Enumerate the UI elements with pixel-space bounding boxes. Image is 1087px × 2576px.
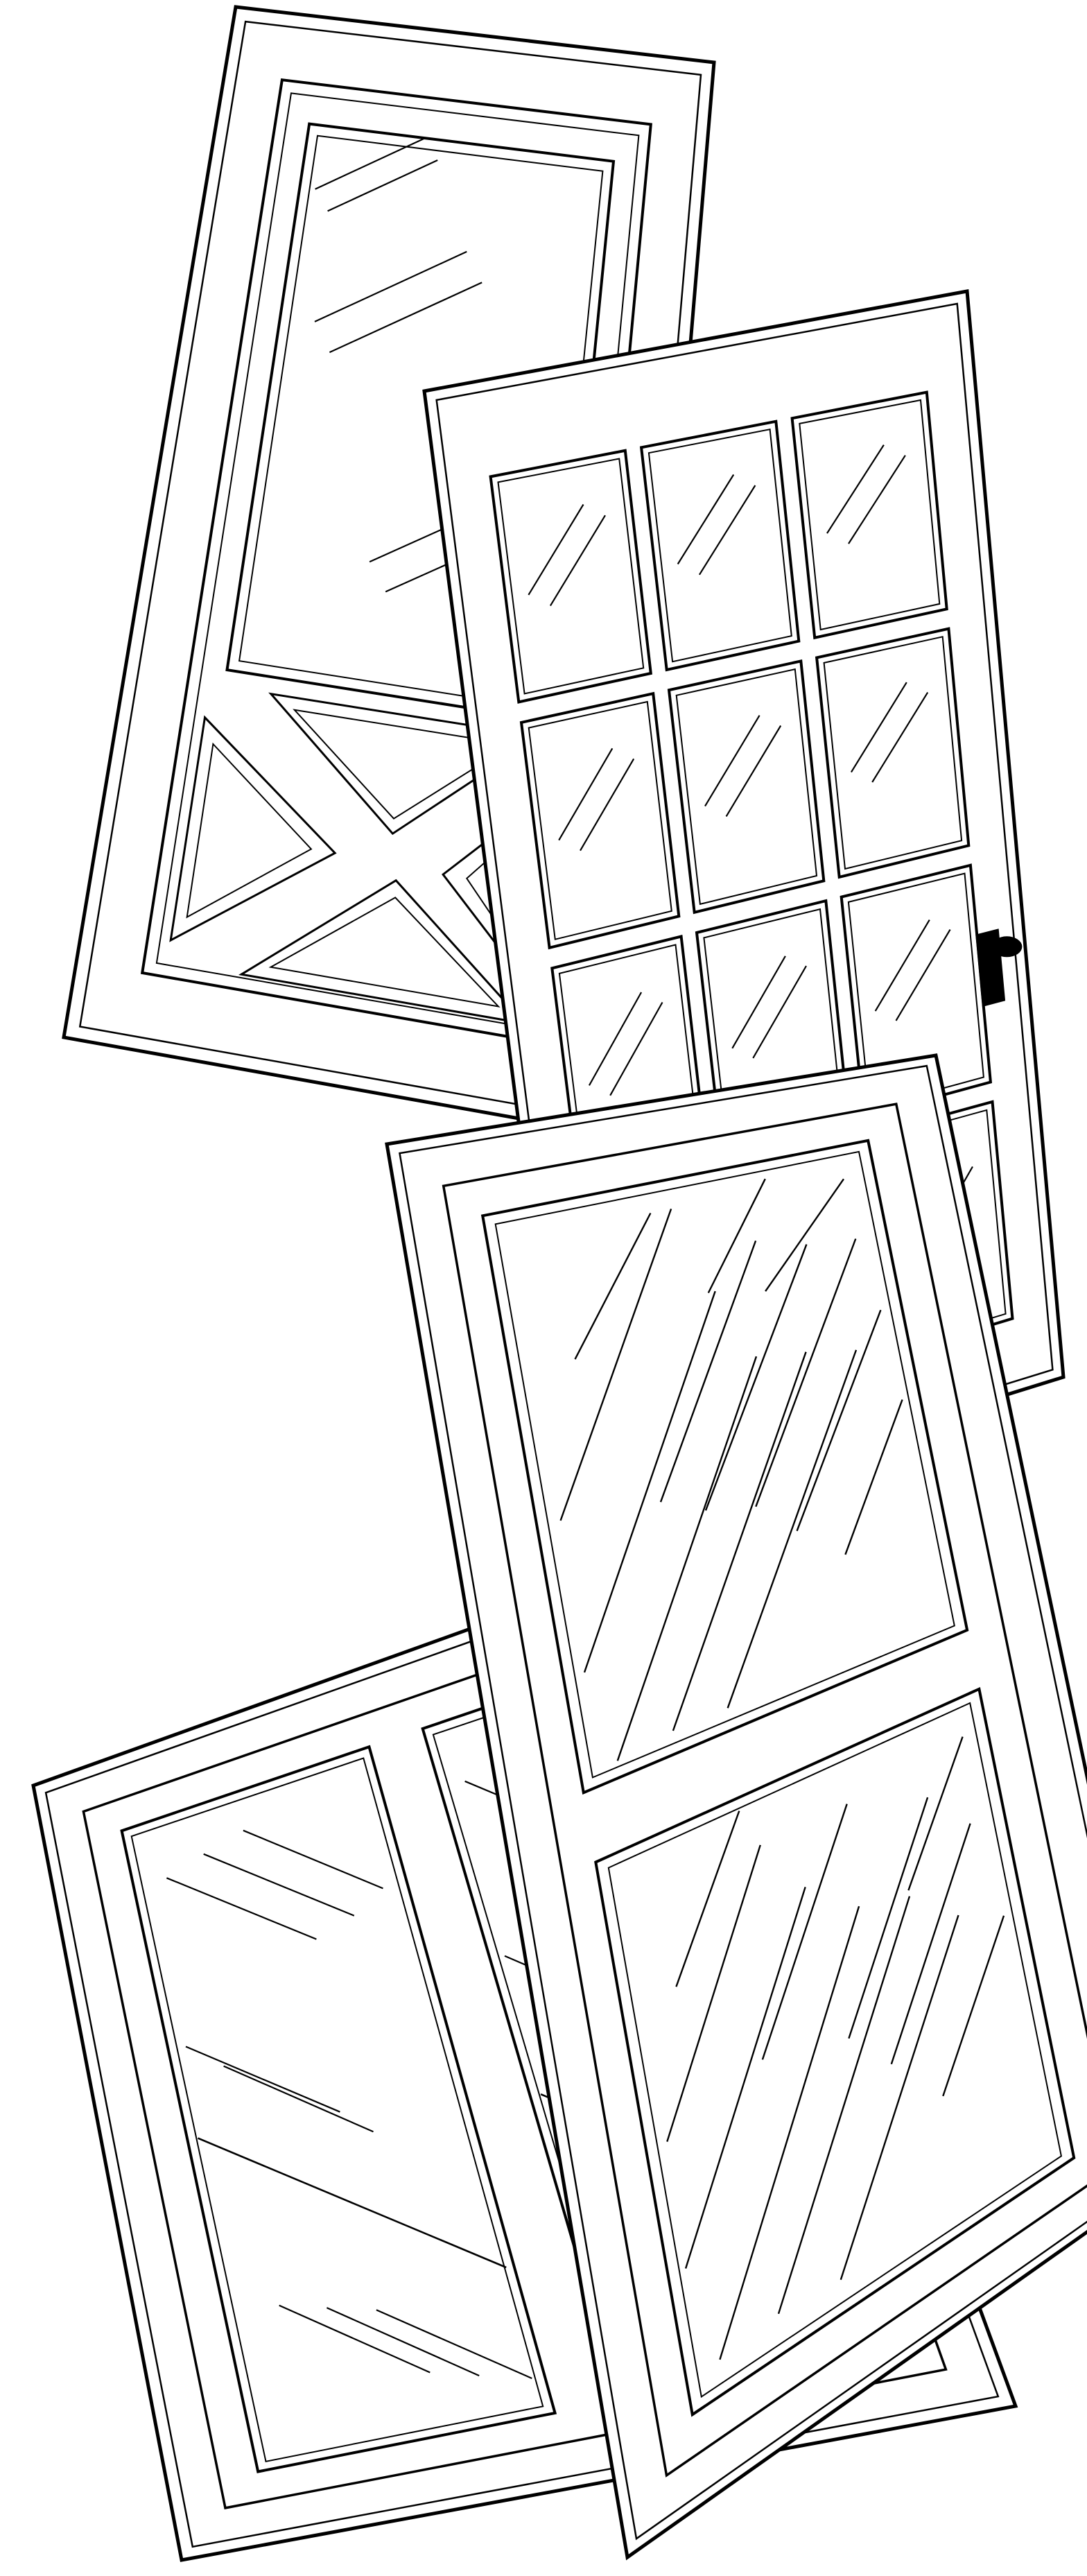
door-handle-knob xyxy=(991,936,1022,957)
doors-line-art-svg xyxy=(0,0,1087,2576)
doors-illustration xyxy=(0,0,1087,2576)
